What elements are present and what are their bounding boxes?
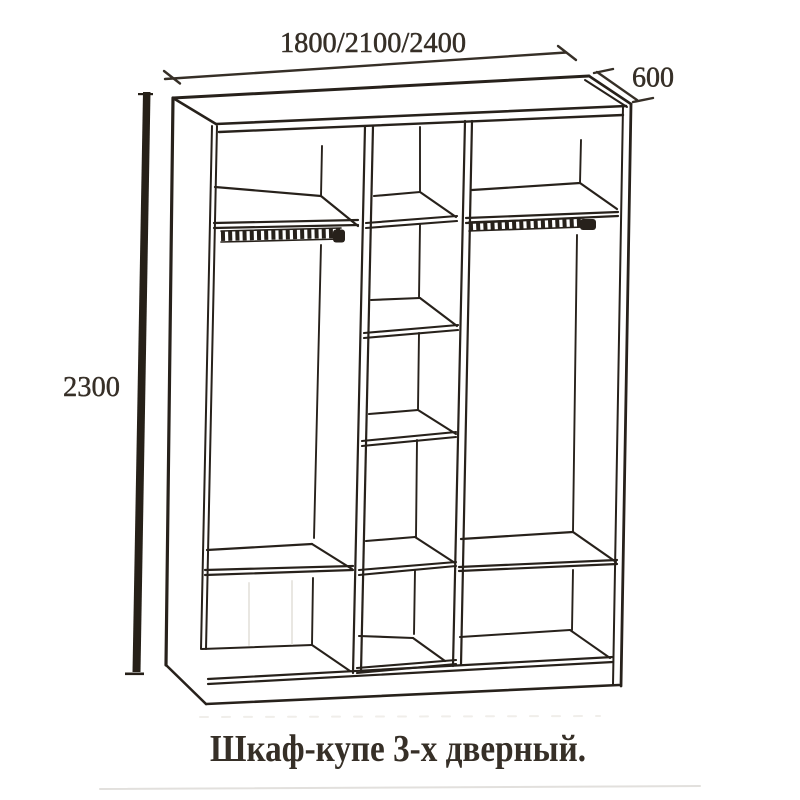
svg-text:Шкаф-купе 3-х дверный.: Шкаф-купе 3-х дверный.	[210, 728, 586, 770]
svg-text:600: 600	[632, 63, 674, 94]
svg-text:2300: 2300	[63, 372, 120, 403]
svg-text:1800/2100/2400: 1800/2100/2400	[280, 28, 466, 59]
